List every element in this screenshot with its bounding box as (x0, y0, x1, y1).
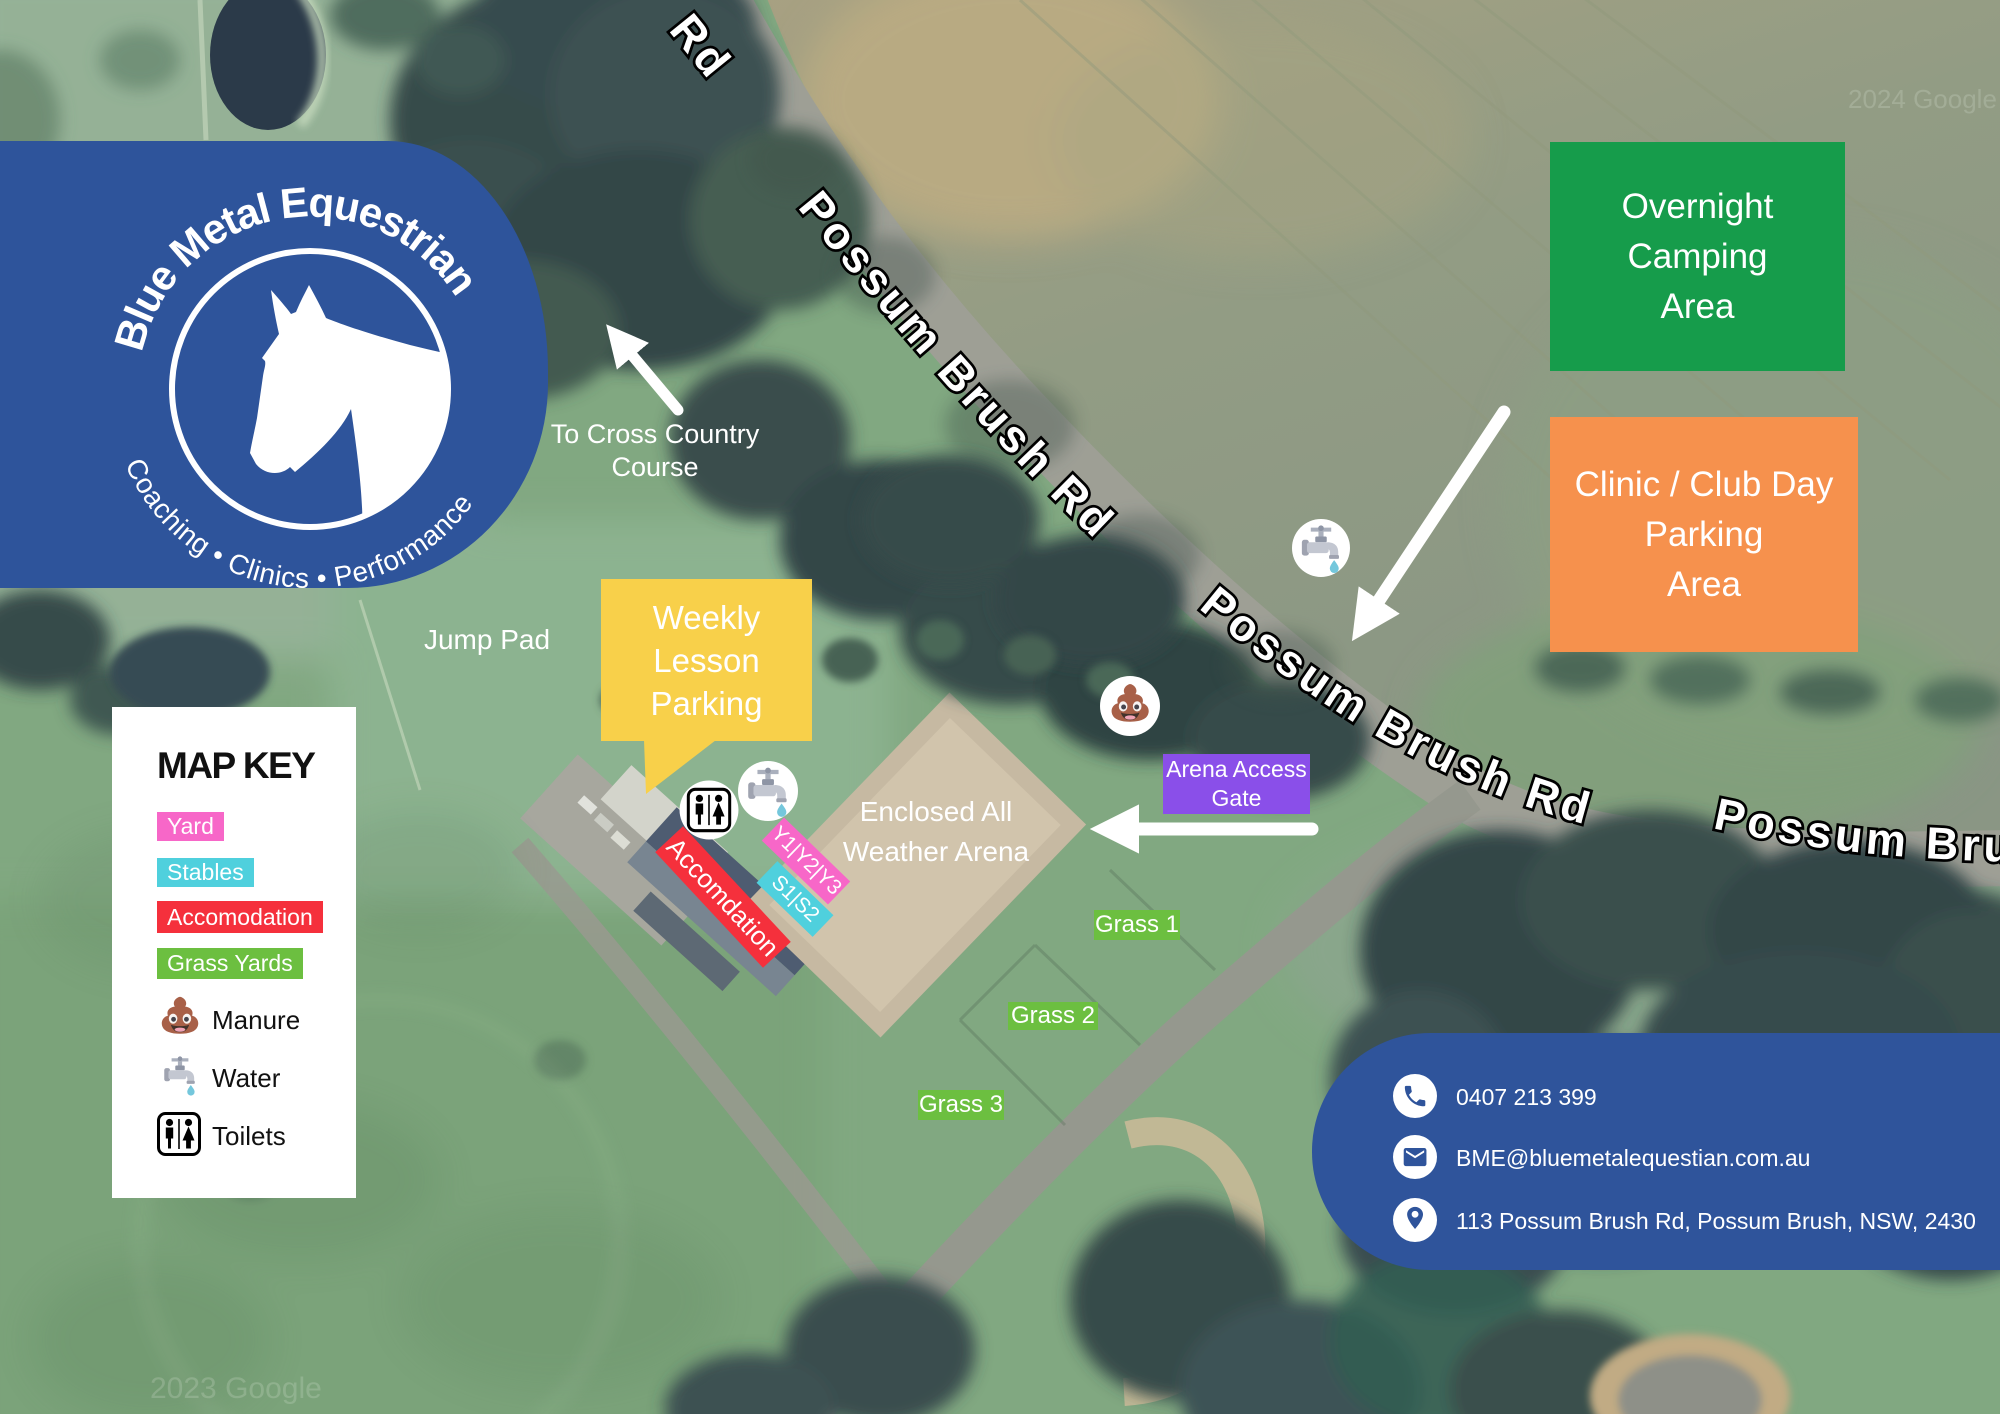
svg-text:Coaching • Clinics • Performan: Coaching • Clinics • Performance (119, 453, 478, 588)
